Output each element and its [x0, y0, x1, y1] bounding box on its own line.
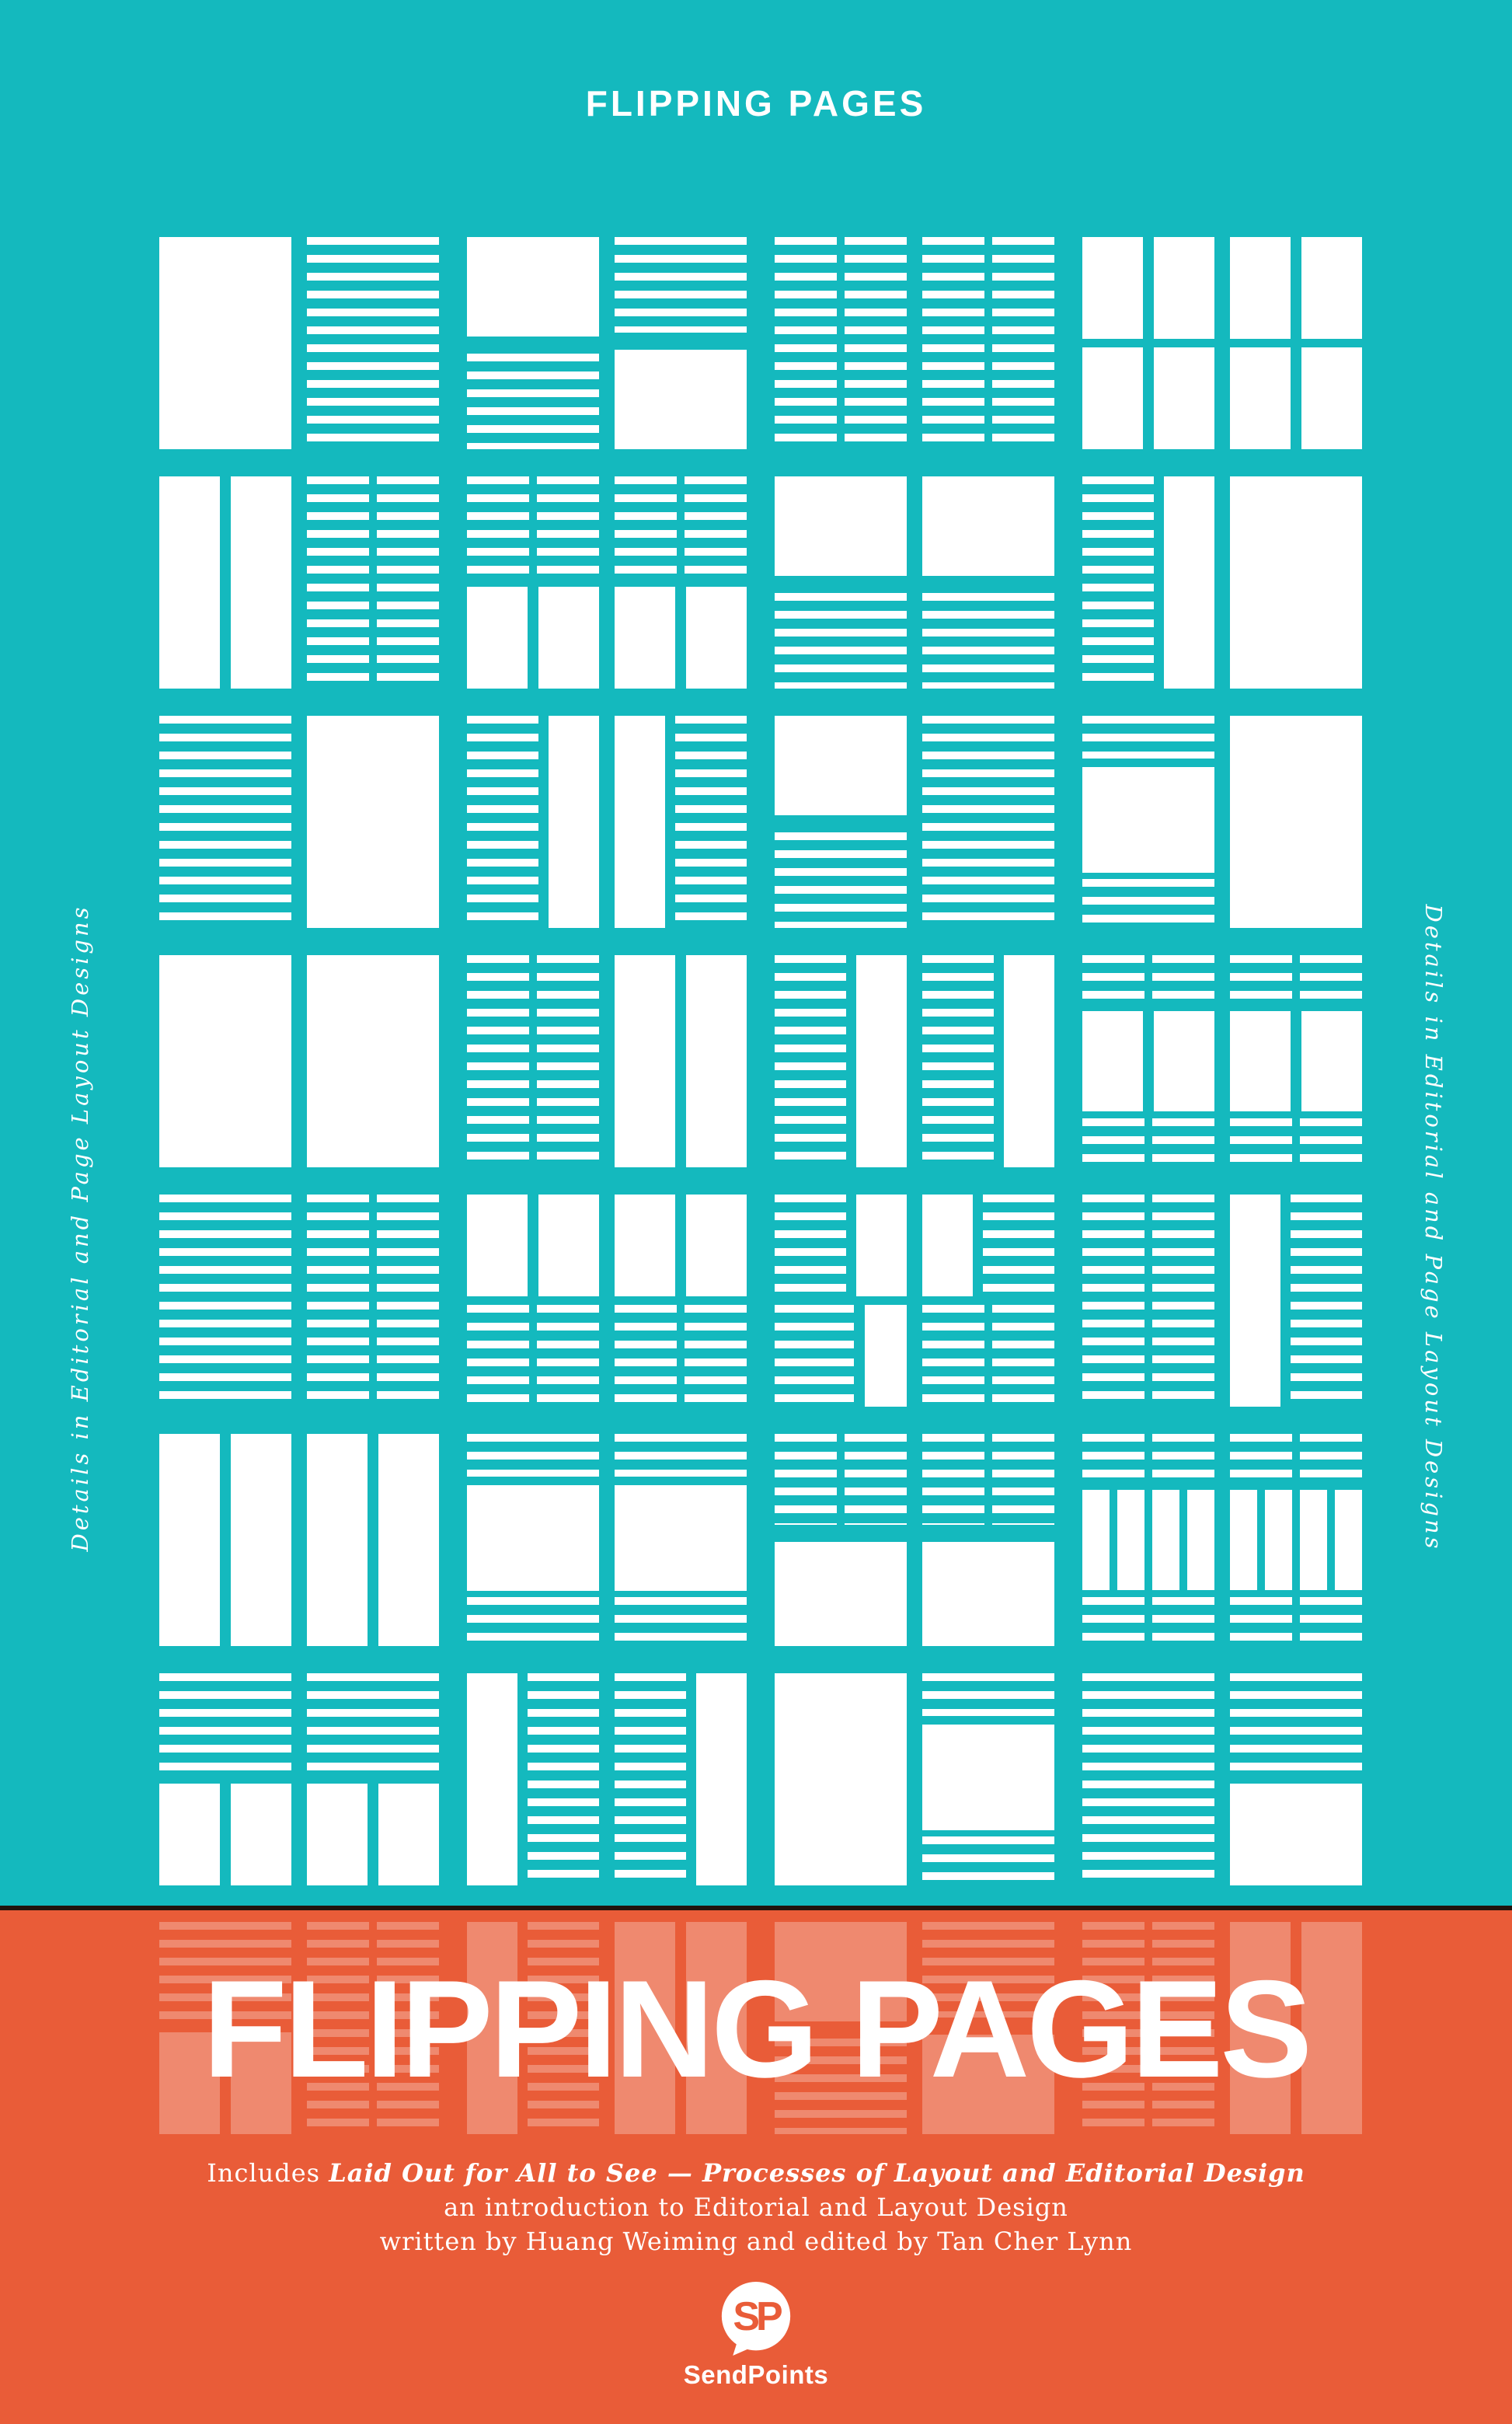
thumb-textlines [922, 1305, 984, 1407]
thumb-region [1082, 237, 1214, 339]
thumb-textlines [775, 1195, 846, 1296]
layout-thumbnail [467, 716, 599, 928]
thumb-textlines [467, 476, 529, 578]
thumb-block [159, 1434, 220, 1646]
thumb-region [615, 587, 747, 689]
thumb-block [615, 1195, 675, 1296]
thumb-textlines [1230, 955, 1292, 1004]
layout-thumbnail [775, 716, 907, 928]
thumb-block [1082, 347, 1143, 449]
layout-thumbnail [1230, 1195, 1362, 1407]
book-cover-poster: FLIPPING PAGES Details in Editorial and … [0, 0, 1512, 2424]
thumb-block [686, 587, 747, 689]
layout-thumbnail [1082, 1195, 1214, 1407]
layout-thumbnail [615, 716, 747, 928]
speech-bubble-icon: SP [719, 2282, 793, 2356]
thumb-textlines [1082, 879, 1214, 928]
thumb-textlines [1152, 1118, 1214, 1167]
thumb-block [1300, 1490, 1327, 1589]
layout-thumbnail [922, 1673, 1054, 1885]
thumb-textlines [467, 955, 529, 1167]
thumb-block [159, 476, 220, 689]
thumb-region [922, 1305, 1054, 1407]
thumb-block [307, 716, 439, 928]
thumb-block [307, 1784, 368, 1885]
thumb-block [922, 1195, 973, 1296]
thumb-textlines [1082, 1673, 1214, 1885]
thumb-textlines [537, 955, 599, 1167]
layout-thumbnail [1082, 1673, 1214, 1885]
thumb-region [1230, 347, 1362, 449]
thumb-textlines [615, 1673, 686, 1885]
credits-line-2: an introduction to Editorial and Layout … [0, 2190, 1512, 2224]
thumb-textlines [1152, 1195, 1214, 1407]
thumb-block [615, 716, 665, 928]
thumb-textlines [159, 1195, 291, 1407]
thumb-block [1154, 1011, 1214, 1111]
thumb-textlines [467, 1597, 599, 1646]
thumb-block [1230, 1195, 1280, 1407]
layout-thumbnail [467, 1434, 599, 1646]
thumb-region [1230, 1673, 1362, 1775]
thumb-block [1230, 347, 1291, 449]
layout-thumbnail [615, 237, 747, 449]
layout-thumbnail [467, 1673, 599, 1885]
thumb-textlines [1082, 1597, 1144, 1646]
thumb-block [686, 1195, 747, 1296]
thumb-block [1117, 1490, 1144, 1589]
thumb-block [1152, 1490, 1179, 1589]
thumb-textlines [685, 476, 747, 578]
credits-includes: Includes [207, 2158, 329, 2188]
thumb-textlines [775, 1434, 837, 1525]
thumb-block [1004, 955, 1054, 1167]
thumb-region [1230, 237, 1362, 339]
layout-thumbnail [1230, 716, 1362, 928]
thumb-region [1082, 347, 1214, 449]
thumb-textlines [922, 955, 994, 1167]
thumb-block [1230, 1490, 1257, 1589]
thumb-block [922, 1725, 1054, 1831]
thumb-region [467, 1305, 599, 1407]
thumb-block [686, 955, 747, 1167]
thumb-block [467, 1485, 599, 1592]
thumb-block [159, 237, 291, 449]
thumb-textlines [1082, 1118, 1144, 1167]
thumb-textlines [1152, 955, 1214, 1004]
layout-thumbnail [922, 955, 1054, 1167]
thumb-block [1301, 237, 1362, 339]
layout-thumbnail [467, 955, 599, 1167]
credits-block: Includes Laid Out for All to See — Proce… [0, 2156, 1512, 2258]
layout-thumbnail [159, 1673, 291, 1885]
thumb-block [1265, 1490, 1292, 1589]
thumb-textlines [1082, 1434, 1144, 1483]
layout-thumbnail [775, 955, 907, 1167]
thumb-block [615, 587, 675, 689]
thumb-block [775, 716, 907, 815]
thumb-textlines [983, 1195, 1054, 1296]
thumb-block [1154, 237, 1214, 339]
thumb-textlines [377, 476, 439, 689]
layout-thumbnail [1230, 955, 1362, 1167]
thumb-block [1082, 767, 1214, 874]
thumb-textlines [467, 1434, 599, 1477]
layout-thumbnail [159, 1434, 291, 1646]
layout-thumbnail [775, 476, 907, 689]
thumb-region [307, 1784, 439, 1885]
thumb-block [1230, 716, 1362, 928]
layout-thumbnail [922, 1434, 1054, 1646]
layout-thumbnail [1082, 1434, 1214, 1646]
thumb-textlines [1300, 955, 1362, 1004]
layout-thumbnail [307, 955, 439, 1167]
thumb-block [538, 1195, 599, 1296]
layout-thumbnail-grid [0, 0, 1512, 1906]
layout-thumbnail [775, 1673, 907, 1885]
layout-thumbnail [159, 716, 291, 928]
layout-thumbnail [159, 237, 291, 449]
thumb-textlines [615, 476, 677, 578]
layout-thumbnail [615, 1673, 747, 1885]
thumb-textlines [159, 716, 291, 928]
thumb-block [231, 1434, 291, 1646]
thumb-textlines [922, 237, 984, 449]
thumb-block [1230, 237, 1291, 339]
layout-thumbnail [1230, 237, 1362, 449]
layout-thumbnail [307, 237, 439, 449]
thumb-textlines [775, 593, 907, 689]
thumb-textlines [775, 832, 907, 928]
thumb-region [615, 1195, 747, 1296]
layout-thumbnail [1230, 476, 1362, 689]
thumb-block [549, 716, 599, 928]
thumb-textlines [922, 1836, 1054, 1885]
layout-thumbnail [159, 476, 291, 689]
thumb-block [696, 1673, 747, 1885]
thumb-block [1082, 237, 1143, 339]
thumb-textlines [1082, 955, 1144, 1004]
thumb-block [775, 1542, 907, 1646]
publisher-logo: SP SendPoints [0, 2282, 1512, 2390]
layout-thumbnail [1230, 1673, 1362, 1885]
thumb-block [378, 1434, 439, 1646]
thumb-block [775, 1673, 907, 1885]
thumb-block [615, 350, 747, 449]
thumb-textlines [675, 716, 747, 928]
thumb-textlines [307, 237, 439, 449]
thumb-region [1230, 1784, 1362, 1885]
credits-line-3: written by Huang Weiming and edited by T… [0, 2224, 1512, 2258]
thumb-block [1230, 1784, 1362, 1885]
layout-thumbnail [307, 716, 439, 928]
thumb-region [467, 476, 599, 578]
thumb-textlines [1230, 1434, 1292, 1483]
thumb-textlines [775, 1305, 854, 1407]
thumb-textlines [1152, 1434, 1214, 1483]
thumb-region [775, 1305, 907, 1407]
thumb-block [922, 476, 1054, 576]
layout-thumbnail [467, 476, 599, 689]
layout-thumbnail [922, 237, 1054, 449]
layout-thumbnail [467, 237, 599, 449]
thumb-block [231, 476, 291, 689]
thumb-block [467, 587, 528, 689]
thumb-textlines [307, 1195, 369, 1407]
thumb-textlines [467, 354, 599, 449]
thumb-textlines [1152, 1597, 1214, 1646]
credits-book-title: Laid Out for All to See — Processes of L… [329, 2158, 1305, 2188]
thumb-region [467, 1195, 599, 1296]
thumb-textlines [537, 476, 599, 578]
thumb-textlines [615, 1434, 747, 1477]
thumb-textlines [1230, 1118, 1292, 1167]
thumb-textlines [845, 1434, 907, 1525]
thumb-block [1187, 1490, 1214, 1589]
thumb-textlines [467, 716, 538, 928]
thumb-textlines [992, 237, 1054, 449]
thumb-block [307, 1434, 368, 1646]
thumb-region [922, 1195, 1054, 1296]
thumb-region [467, 587, 599, 689]
thumb-block [1301, 347, 1362, 449]
thumb-block [1230, 1011, 1291, 1111]
thumb-textlines [922, 1673, 1054, 1716]
thumb-textlines [1082, 716, 1214, 759]
thumb-textlines [922, 716, 1054, 928]
layout-thumbnail [307, 476, 439, 689]
thumb-textlines [1300, 1118, 1362, 1167]
layout-thumbnail [615, 1434, 747, 1646]
thumb-block [159, 955, 291, 1167]
thumb-region [159, 1784, 291, 1885]
thumb-block [467, 1195, 528, 1296]
thumb-block [615, 1485, 747, 1592]
thumb-block [467, 1673, 517, 1885]
thumb-textlines [992, 1434, 1054, 1525]
logo-wordmark: SendPoints [0, 2360, 1512, 2390]
layout-thumbnail [467, 1195, 599, 1407]
thumb-textlines [159, 1673, 291, 1775]
teal-panel: FLIPPING PAGES Details in Editorial and … [0, 0, 1512, 1906]
layout-thumbnail [307, 1673, 439, 1885]
layout-thumbnail [1082, 955, 1214, 1167]
layout-thumbnail [775, 1434, 907, 1646]
thumb-block [922, 1542, 1054, 1646]
thumb-textlines [775, 237, 837, 449]
thumb-textlines [307, 476, 369, 689]
layout-thumbnail [1230, 1434, 1362, 1646]
thumb-block [856, 955, 907, 1167]
thumb-block [159, 1784, 220, 1885]
thumb-textlines [615, 237, 747, 333]
thumb-textlines [615, 1597, 747, 1646]
thumb-textlines [537, 1305, 599, 1407]
layout-thumbnail [775, 237, 907, 449]
layout-thumbnail [159, 955, 291, 1167]
layout-thumbnail [775, 1195, 907, 1407]
layout-thumbnail [615, 955, 747, 1167]
thumb-region [775, 1195, 907, 1296]
thumb-region [615, 1305, 747, 1407]
thumb-block [1164, 476, 1214, 689]
thumb-textlines [1230, 1673, 1362, 1775]
layout-thumbnail [922, 716, 1054, 928]
thumb-textlines [1082, 1195, 1144, 1407]
orange-panel: FLIPPING PAGES Includes Laid Out for All… [0, 1910, 1512, 2424]
thumb-textlines [377, 1195, 439, 1407]
thumb-block [1335, 1490, 1362, 1589]
layout-thumbnail [1082, 716, 1214, 928]
thumb-textlines [1291, 1195, 1362, 1407]
thumb-block [865, 1305, 907, 1407]
layout-thumbnail [922, 476, 1054, 689]
thumb-textlines [685, 1305, 747, 1407]
thumb-textlines [922, 593, 1054, 689]
thumb-block [856, 1195, 907, 1296]
thumb-region [615, 476, 747, 578]
thumb-textlines [1300, 1597, 1362, 1646]
thumb-block [1082, 1011, 1143, 1111]
thumb-textlines [1230, 1597, 1292, 1646]
layout-thumbnail [922, 1195, 1054, 1407]
thumb-block [615, 955, 675, 1167]
thumb-textlines [775, 955, 846, 1167]
thumb-block [1082, 1490, 1110, 1589]
thumb-block [307, 955, 439, 1167]
thumb-textlines [845, 237, 907, 449]
thumb-block [1301, 1011, 1362, 1111]
thumb-region [307, 1673, 439, 1775]
thumb-block [378, 1784, 439, 1885]
credits-line-1: Includes Laid Out for All to See — Proce… [0, 2156, 1512, 2190]
thumb-block [1154, 347, 1214, 449]
thumb-textlines [615, 1305, 677, 1407]
thumb-block [231, 1784, 291, 1885]
layout-thumbnail [159, 1195, 291, 1407]
thumb-block [467, 237, 599, 337]
thumb-block [1230, 476, 1362, 689]
cover-main-title: FLIPPING PAGES [0, 1960, 1512, 2098]
layout-thumbnail [615, 1195, 747, 1407]
layout-thumbnail [307, 1195, 439, 1407]
thumb-textlines [1300, 1434, 1362, 1483]
thumb-textlines [1082, 476, 1154, 689]
thumb-textlines [992, 1305, 1054, 1407]
thumb-textlines [528, 1673, 599, 1885]
thumb-textlines [307, 1673, 439, 1775]
sp-monogram: SP [719, 2282, 793, 2352]
thumb-region [159, 1673, 291, 1775]
thumb-textlines [467, 1305, 529, 1407]
layout-thumbnail [1082, 237, 1214, 449]
layout-thumbnail [307, 1434, 439, 1646]
layout-thumbnail [1082, 476, 1214, 689]
layout-thumbnail [615, 476, 747, 689]
thumb-block [538, 587, 599, 689]
thumb-textlines [922, 1434, 984, 1525]
thumb-block [775, 476, 907, 576]
